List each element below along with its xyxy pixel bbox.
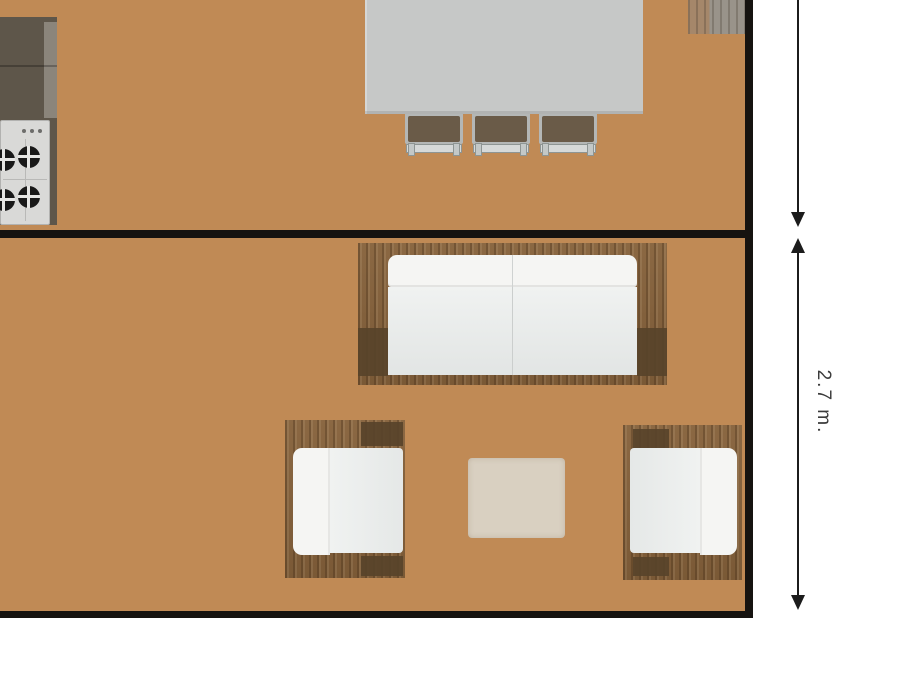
stove-grid-line <box>3 179 47 180</box>
sofa-back-cushion <box>388 255 513 287</box>
sofa-frame-accent <box>358 328 388 376</box>
stove-knob <box>30 129 34 133</box>
floor-plan-canvas: 2.7 m. <box>0 0 900 675</box>
armchair-right[interactable] <box>623 425 742 580</box>
arrow-down-icon <box>791 595 805 610</box>
rug[interactable] <box>468 458 565 538</box>
wall-bottom <box>0 611 753 618</box>
burner-icon <box>18 146 40 168</box>
armchair-seat-cushion <box>330 448 403 553</box>
armchair-frame-accent <box>633 557 669 576</box>
chair-cushion <box>542 116 594 142</box>
stove-knob <box>38 129 42 133</box>
dimension-line-top <box>797 0 799 214</box>
chair-cushion <box>408 116 460 142</box>
burner-icon <box>18 186 40 208</box>
gas-stove[interactable] <box>0 120 50 225</box>
armchair-frame-accent <box>361 422 403 446</box>
sofa[interactable] <box>358 243 667 385</box>
burner-icon <box>0 189 15 211</box>
sofa-seat-cushions <box>388 287 637 375</box>
dining-table[interactable] <box>365 0 643 114</box>
armchair-seat-cushion <box>630 448 700 553</box>
counter-edge <box>44 22 57 118</box>
chair-cushion <box>475 116 527 142</box>
sofa-frame-accent <box>637 328 667 376</box>
chair-backrest <box>540 144 596 153</box>
wall-right <box>745 0 753 618</box>
armchair-frame-accent <box>361 556 403 576</box>
sofa-back-cushions <box>388 255 637 287</box>
chair-backrest <box>406 144 462 153</box>
armchair-left[interactable] <box>285 420 405 578</box>
stove-knobs <box>22 129 44 134</box>
burner-icon <box>0 149 15 171</box>
stove-knob <box>22 129 26 133</box>
armchair-back-cushion <box>700 448 737 555</box>
wall-divider <box>0 230 753 238</box>
dimension-line-bottom <box>797 251 799 597</box>
chair-backrest <box>473 144 529 153</box>
dimension-label: 2.7 m. <box>812 370 834 435</box>
arrow-down-icon <box>791 212 805 227</box>
wall-cabinet[interactable] <box>688 0 745 34</box>
armchair-frame-accent <box>633 429 669 448</box>
counter-seam <box>0 65 57 67</box>
armchair-back-cushion <box>293 448 330 555</box>
sofa-back-cushion <box>513 255 637 287</box>
